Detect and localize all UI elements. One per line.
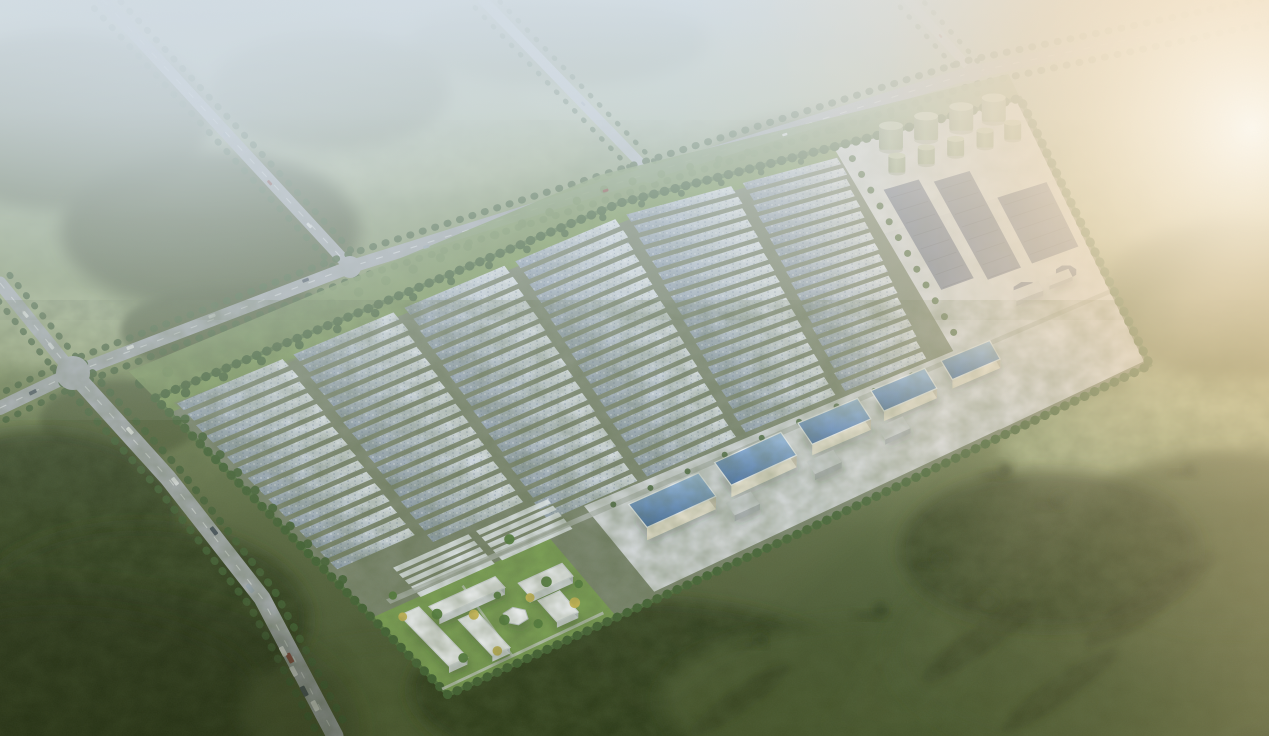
film-grain [0,0,1269,736]
aerial-rendering [0,0,1269,736]
rendering-canvas [0,0,1269,736]
atmosphere [0,0,1269,736]
